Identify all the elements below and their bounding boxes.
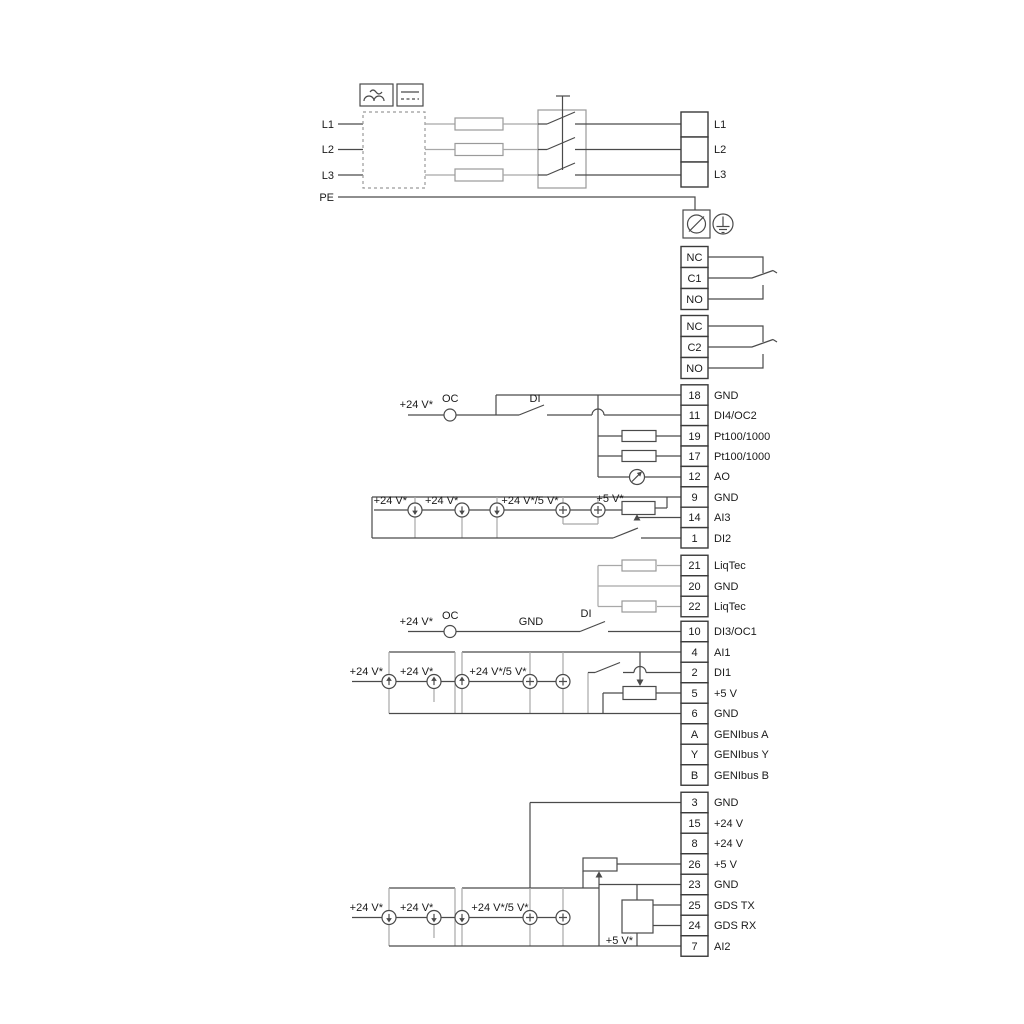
terminal-label: LiqTec: [714, 601, 746, 613]
relay1-no: NO: [686, 294, 703, 306]
gnd18-wire: [496, 395, 681, 415]
terminal-strip-io1: 18 11 19 17 12 9 14 1 GND DI4/OC2 Pt100/…: [681, 385, 770, 548]
terminal-label: AO: [714, 471, 730, 483]
ai1-potentiometer: [603, 687, 681, 714]
relay2-changeover-contact: [708, 340, 777, 348]
terminal-number: 4: [691, 647, 697, 659]
terminal-number: 10: [688, 626, 700, 638]
di3-oc-label: OC: [442, 610, 459, 622]
terminal-number: 11: [689, 410, 700, 422]
relay2-no: NO: [686, 363, 703, 375]
terminal-number: B: [691, 770, 698, 782]
terminal-cell: [681, 137, 708, 162]
relay1-nc: NC: [687, 252, 703, 264]
current-source-icon: [382, 911, 396, 925]
source-label: +24 V*: [425, 495, 459, 507]
terminal-strip-io3: 3 15 8 26 23 25 24 7 GND +24 V +24 V +5 …: [681, 792, 757, 956]
gnd3-wire: [530, 803, 681, 889]
terminal-label: GND: [714, 581, 739, 593]
terminal-label: AI2: [714, 941, 731, 953]
terminal-number: 15: [688, 818, 700, 830]
terminal-label: GND: [714, 492, 739, 504]
relay2-c2: C2: [687, 342, 701, 354]
current-source-icon: [455, 503, 469, 517]
pe-wire: [338, 197, 695, 210]
voltage-source-icon: [591, 503, 605, 517]
terminal-number: 25: [688, 900, 700, 912]
power-input-section: L1 L2 L3 PE: [319, 84, 733, 238]
terminal-number: 7: [691, 941, 697, 953]
di3-supply-label: +24 V*: [400, 616, 434, 628]
terminal-number: Y: [691, 749, 699, 761]
terminal-label: +24 V: [714, 818, 744, 830]
dc-symbol-icon: [397, 84, 423, 106]
terminal-label: DI1: [714, 667, 731, 679]
output-label-l2: L2: [714, 144, 726, 156]
io2-wiring: +24 V* OC GND DI +24 V* +24 V* +24 V*/5 …: [350, 608, 681, 714]
current-source-icon: [455, 675, 469, 689]
liqtec-wires: [598, 566, 681, 607]
di3-switch-wire: [456, 622, 681, 632]
terminal-label: GND: [714, 797, 739, 809]
pe-ground: [338, 197, 733, 238]
ac-symbol-icon: [360, 84, 393, 106]
source-label: +24 V*: [350, 902, 384, 914]
terminal-number: 14: [688, 512, 700, 524]
di4-supply-label: +24 V*: [400, 399, 434, 411]
voltage-source-icon: [556, 503, 570, 517]
ai1-wiper-arrow: [637, 680, 644, 687]
di2-wire: [372, 528, 681, 538]
terminal-number: 20: [688, 581, 700, 593]
current-source-icon: [408, 503, 422, 517]
source-label: +24 V*/5 V*: [501, 495, 559, 507]
di4-oc-label: OC: [442, 393, 459, 405]
terminal-cell: [681, 162, 708, 187]
di4-di-label: DI: [530, 393, 541, 405]
terminal-label: GENIbus B: [714, 770, 769, 782]
terminal-number: 21: [688, 560, 700, 572]
terminal-number: 24: [688, 920, 700, 932]
wiring-diagram-canvas: L1 L2 L3 PE: [0, 0, 1024, 1024]
terminal-label: LiqTec: [714, 560, 746, 572]
pt100-resistor-19: [622, 431, 656, 442]
terminal-label: DI4/OC2: [714, 410, 757, 422]
output-label-l1: L1: [714, 119, 726, 131]
current-source-icon: [455, 911, 469, 925]
terminal-label: GENIbus A: [714, 729, 769, 741]
terminal-label: DI2: [714, 533, 731, 545]
mains-label-l2: L2: [322, 144, 334, 156]
source-label: +24 V*: [350, 666, 384, 678]
terminal-label: GDS TX: [714, 900, 755, 912]
voltage-source-icon: [523, 911, 537, 925]
terminal-label: Pt100/1000: [714, 451, 770, 463]
fuse-l3: [455, 169, 503, 181]
liqtec-resistor: [622, 560, 656, 571]
terminal-label: +24 V: [714, 838, 744, 850]
terminal-label: +5 V: [714, 859, 738, 871]
terminal-label: GENIbus Y: [714, 749, 769, 761]
terminal-number: 22: [688, 601, 700, 613]
source-label: +24 V*/5 V*: [469, 666, 527, 678]
terminal-number: 18: [688, 390, 700, 402]
meter-icon: [630, 470, 645, 485]
source-label: +24 V*: [374, 495, 408, 507]
voltage-source-icon: [556, 911, 570, 925]
main-switch: [538, 96, 586, 188]
terminal-number: 12: [688, 471, 700, 483]
terminal-number: 26: [688, 859, 700, 871]
terminal-number: 9: [691, 492, 697, 504]
fuse-l1: [455, 118, 503, 130]
option-bottom-ticks: [415, 517, 598, 538]
terminal-number: 23: [688, 879, 700, 891]
switch-output-wires: [586, 124, 681, 175]
output-label-l3: L3: [714, 169, 726, 181]
drive-converter-box: [363, 112, 425, 188]
di3-gnd-label: GND: [519, 616, 544, 628]
open-collector-icon: [444, 409, 456, 421]
terminal-number: 2: [691, 667, 697, 679]
relay-1: NC C1 NO: [681, 247, 777, 310]
current-source-icon: [427, 675, 441, 689]
wiring-diagram: L1 L2 L3 PE: [0, 0, 1024, 1024]
relay1-c1: C1: [687, 273, 701, 285]
di3-di-label: DI: [581, 608, 592, 620]
terminal-label: AI1: [714, 647, 731, 659]
source-label: +24 V*/5 V*: [471, 902, 529, 914]
pt100-resistor-17: [622, 451, 656, 462]
terminal-strip-liqtec: 21 20 22 LiqTec GND LiqTec: [681, 555, 746, 617]
terminal-label: GND: [714, 708, 739, 720]
voltage-source-icon: [523, 675, 537, 689]
terminal-number: 3: [691, 797, 697, 809]
liqtec-wiring: [598, 560, 681, 612]
gds-supply-label: +5 V*: [606, 935, 634, 947]
terminal-strip-io2: 10 4 2 5 6 A Y B DI3/OC1 AI1 DI1 +5 V GN…: [681, 621, 769, 785]
terminal-label: GND: [714, 390, 739, 402]
liqtec-resistor: [622, 601, 656, 612]
io3-wiring: +24 V* +24 V* +24 V*/5 V* +5 V*: [350, 803, 681, 948]
mains-input-wires: [338, 124, 363, 175]
io1-wiring: +24 V* OC DI +24 V* +24 V* +24 V*/5 V* +…: [372, 393, 681, 538]
terminal-label: AI3: [714, 512, 731, 524]
current-source-icon: [382, 675, 396, 689]
fuse-output-wires: [503, 124, 538, 175]
current-source-icon: [427, 911, 441, 925]
mains-label-l3: L3: [322, 170, 334, 182]
terminal-label: Pt100/1000: [714, 431, 770, 443]
earth-icon: [713, 214, 733, 234]
terminal-label: +5 V: [714, 688, 738, 700]
relay1-changeover-contact: [708, 271, 777, 279]
mains-terminal-block: L1 L2 L3: [681, 112, 726, 187]
voltage-source-icon: [556, 675, 570, 689]
fuse-l2: [455, 144, 503, 156]
terminal-label: GDS RX: [714, 920, 757, 932]
terminal-cell: [681, 112, 708, 137]
di4-switch-wire: [456, 405, 681, 415]
mains-label-l1: L1: [322, 119, 334, 131]
relay-2: NC C2 NO: [681, 316, 777, 379]
converter-output-wires: [425, 124, 455, 175]
terminal-number: 17: [688, 451, 700, 463]
relay2-nc: NC: [687, 321, 703, 333]
di1-wire: [588, 663, 681, 673]
terminal-label: GND: [714, 879, 739, 891]
open-collector-icon: [444, 626, 456, 638]
terminal-number: 1: [691, 533, 697, 545]
mains-label-pe: PE: [319, 192, 334, 204]
terminal-number: A: [691, 729, 699, 741]
current-source-icon: [490, 503, 504, 517]
terminal-number: 5: [691, 688, 697, 700]
screw-terminal-icon: [683, 210, 710, 238]
terminal-number: 19: [688, 431, 700, 443]
terminal-number: 6: [691, 708, 697, 720]
terminal-label: DI3/OC1: [714, 626, 757, 638]
terminal-number: 8: [691, 838, 697, 850]
